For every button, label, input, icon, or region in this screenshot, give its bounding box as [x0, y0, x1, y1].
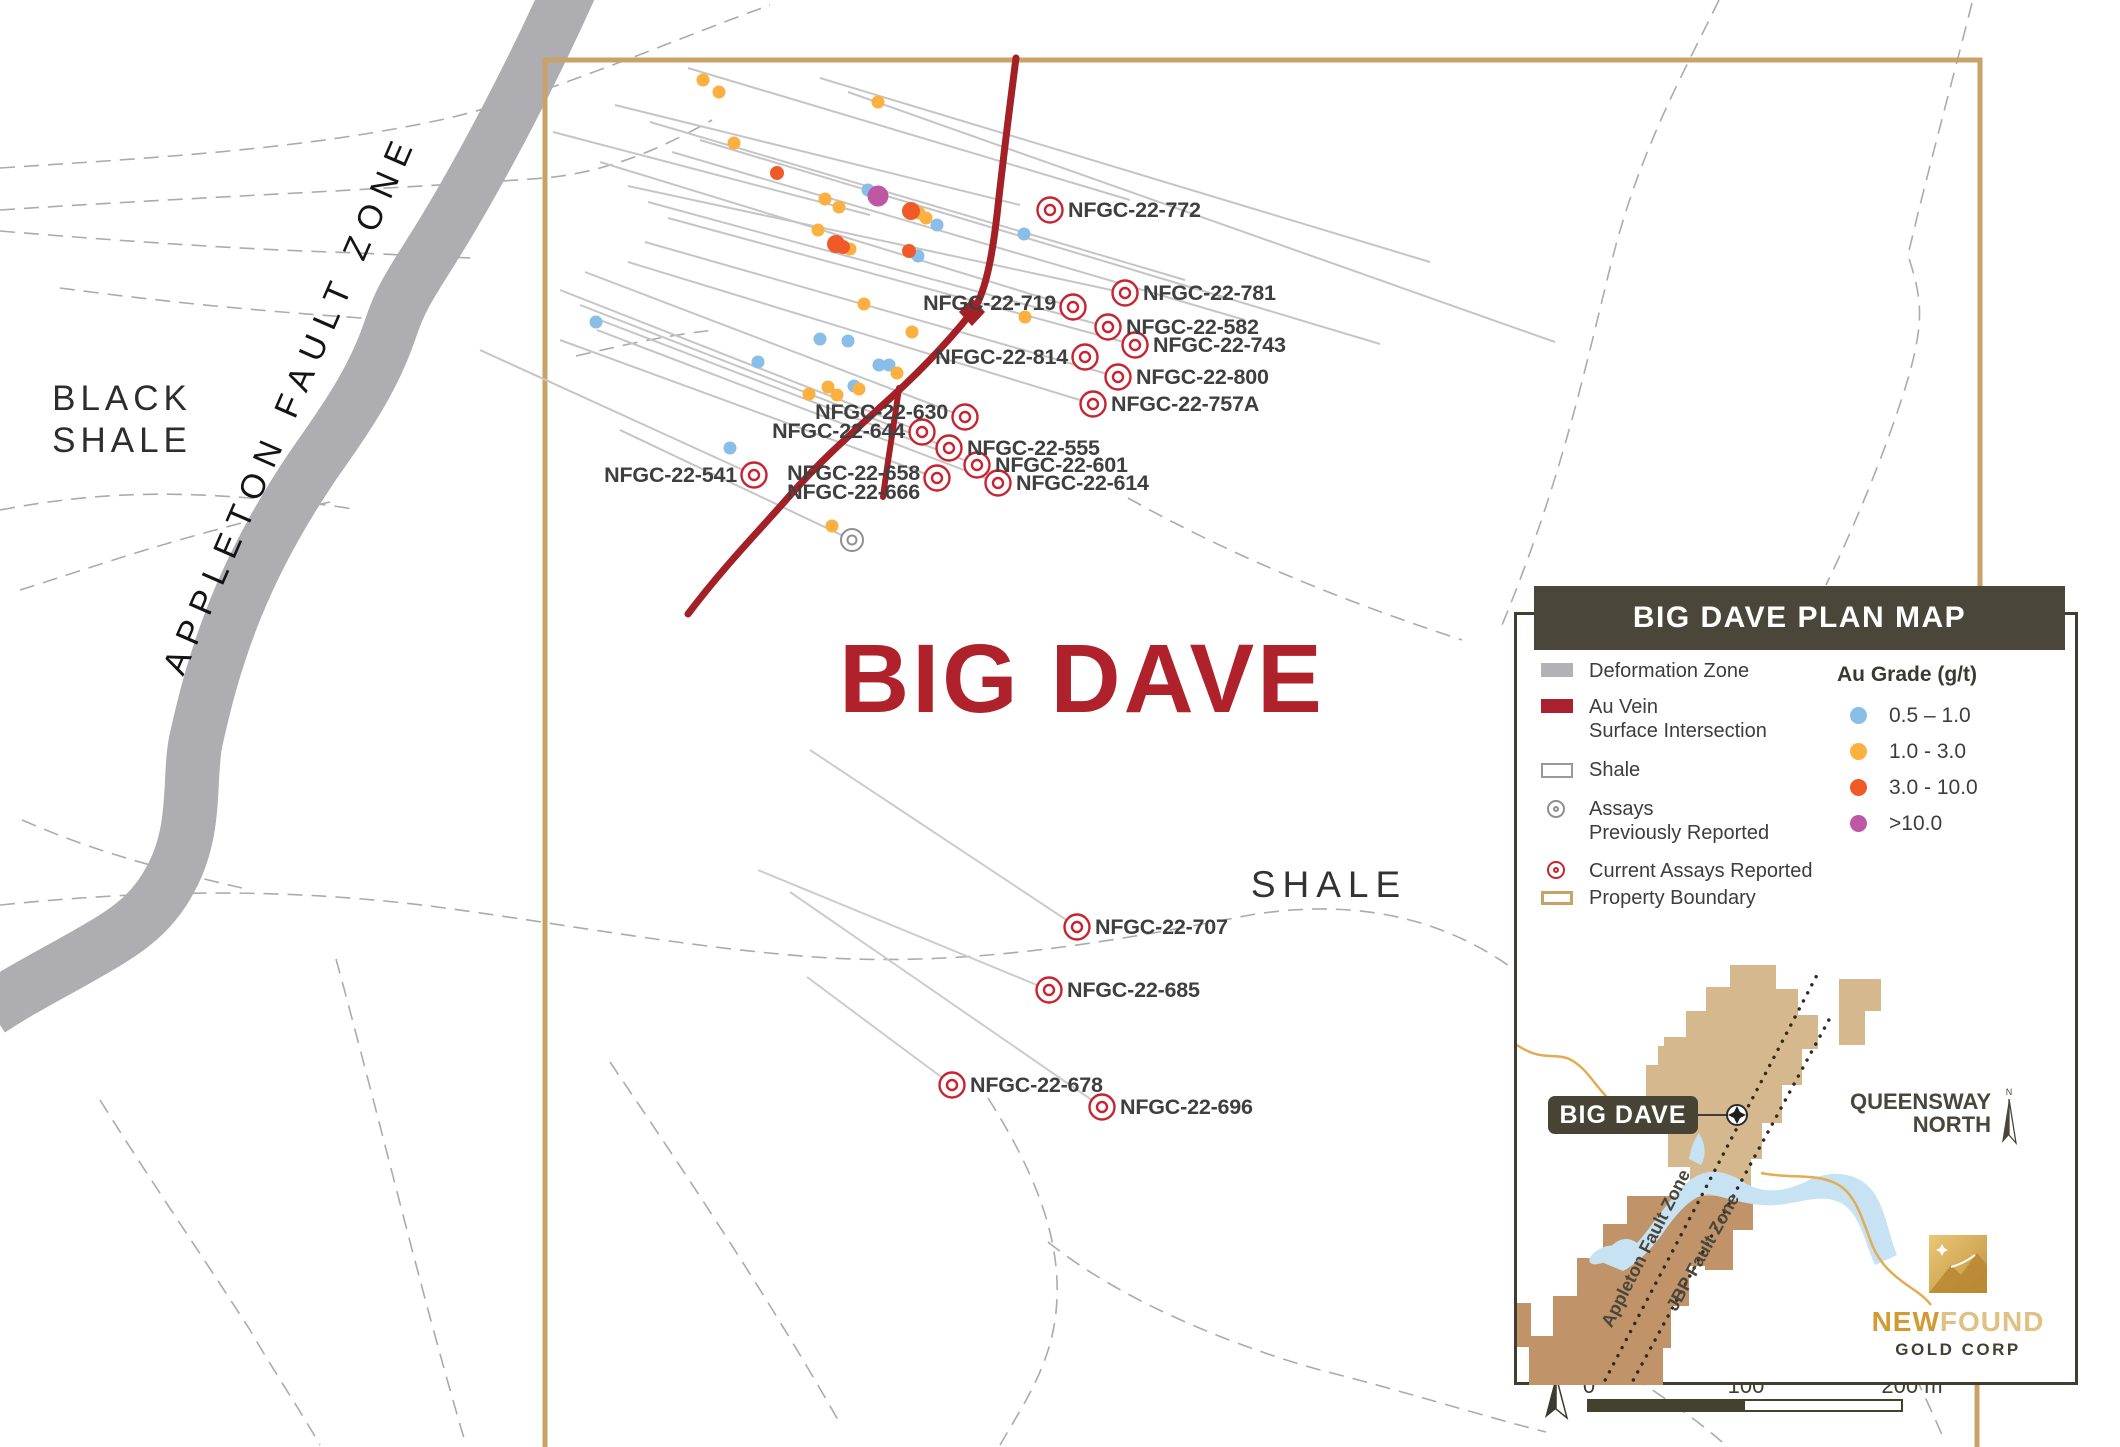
legend-item-au-vein: Au Vein Surface Intersection — [1589, 695, 1767, 743]
hole-label-685: NFGC-22-685 — [1067, 978, 1200, 1002]
grade-dot-red — [1850, 779, 1867, 796]
grade-range-blue: 0.5 – 1.0 — [1889, 704, 1971, 728]
shale-swatch — [1541, 763, 1573, 778]
hole-label-696: NFGC-22-696 — [1120, 1095, 1253, 1119]
current-assays-icon — [1547, 861, 1565, 879]
previous-assays-icon — [1547, 800, 1565, 818]
black-shale-label-line2: SHALE — [52, 421, 192, 460]
hole-label-757A: NFGC-22-757A — [1111, 392, 1259, 416]
logo-found-text: FOUND — [1940, 1306, 2045, 1337]
logo-goldcorp-text: GOLD CORP — [1895, 1340, 2020, 1359]
drill-traces — [480, 68, 1555, 1107]
inset-queensway-line2: NORTH — [1913, 1112, 1991, 1137]
big-dave-title: BIG DAVE — [839, 624, 1325, 733]
hole-label-644: NFGC-22-644 — [772, 419, 905, 443]
logo-new-text: NEW — [1872, 1306, 1940, 1337]
hole-label-666: NFGC-22-666 — [787, 480, 920, 504]
dots-purple — [868, 186, 889, 207]
legend-item-assays-prev: Assays Previously Reported — [1589, 797, 1769, 845]
au-vein-swatch — [1541, 699, 1573, 713]
hole-label-800: NFGC-22-800 — [1136, 365, 1269, 389]
assays-prev-line2: Previously Reported — [1589, 821, 1769, 845]
previous-assay-marker — [841, 529, 863, 551]
inset-claims-light — [1646, 965, 1881, 1197]
au-vein-line1: Au Vein — [1589, 695, 1767, 719]
grade-range-purple: >10.0 — [1889, 812, 1942, 836]
legend-panel: BIG DAVE PLAN MAP Deformation Zone Au Ve… — [1514, 612, 2078, 1385]
property-boundary-swatch — [1541, 891, 1573, 905]
legend-item-property-boundary: Property Boundary — [1589, 886, 1756, 910]
hole-label-814: NFGC-22-814 — [935, 345, 1068, 369]
legend-title: BIG DAVE PLAN MAP — [1534, 586, 2065, 650]
hole-label-719: NFGC-22-719 — [923, 291, 1056, 315]
inset-queensway-line1: QUEENSWAY — [1850, 1089, 1991, 1114]
legend-item-deformation: Deformation Zone — [1589, 659, 1749, 683]
inset-north-n: N — [2006, 1087, 2013, 1097]
black-shale-label-line1: BLACK — [52, 379, 192, 418]
svg-text:NEWFOUND: NEWFOUND — [1872, 1306, 2045, 1337]
hole-label-743: NFGC-22-743 — [1153, 333, 1286, 357]
deformation-zone-band — [0, 0, 578, 1010]
hole-label-772: NFGC-22-772 — [1068, 198, 1201, 222]
inset-big-dave-label: BIG DAVE — [1560, 1101, 1687, 1129]
au-grade-title: Au Grade (g/t) — [1837, 663, 1977, 687]
grade-dot-orange — [1850, 743, 1867, 760]
newfound-logo: NEWFOUND GOLD CORP — [1872, 1235, 2045, 1359]
deformation-zone-swatch — [1541, 663, 1573, 677]
grade-range-orange: 1.0 - 3.0 — [1889, 740, 1966, 764]
hole-label-707: NFGC-22-707 — [1095, 915, 1228, 939]
legend-item-current-assays: Current Assays Reported — [1589, 859, 1812, 883]
assays-prev-line1: Assays — [1589, 797, 1769, 821]
inset-location-map: Appleton Fault Zone JBP Fault Zone BIG D… — [1517, 915, 2075, 1385]
hole-label-678: NFGC-22-678 — [970, 1073, 1103, 1097]
inset-north-arrow: N — [2002, 1087, 2016, 1143]
grade-range-red: 3.0 - 10.0 — [1889, 776, 1978, 800]
grade-dot-blue — [1850, 707, 1867, 724]
grade-dot-purple — [1850, 815, 1867, 832]
hole-label-781: NFGC-22-781 — [1143, 281, 1276, 305]
au-vein-line2: Surface Intersection — [1589, 719, 1767, 743]
legend-item-shale: Shale — [1589, 758, 1640, 782]
hole-label-614: NFGC-22-614 — [1016, 471, 1149, 495]
shale-label: SHALE — [1251, 864, 1407, 905]
hole-label-541: NFGC-22-541 — [604, 463, 737, 487]
